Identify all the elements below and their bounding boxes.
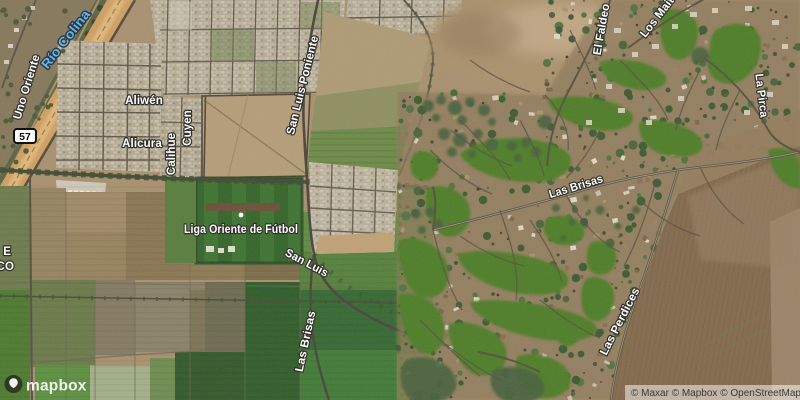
svg-text:Cuyen: Cuyen: [182, 110, 194, 146]
svg-text:CO: CO: [0, 261, 14, 273]
svg-text:© Maxar © Mapbox © OpenStreetM: © Maxar © Mapbox © OpenStreetMap: [631, 388, 800, 399]
svg-text:Liga Oriente de Fútbol: Liga Oriente de Fútbol: [184, 224, 298, 236]
svg-text:Calihue: Calihue: [166, 133, 178, 175]
svg-text:57: 57: [19, 131, 31, 143]
svg-text:Alicura: Alicura: [122, 138, 162, 150]
svg-text:E: E: [3, 246, 11, 258]
svg-text:mapbox: mapbox: [26, 378, 87, 395]
svg-text:Aliwén: Aliwén: [125, 95, 163, 107]
